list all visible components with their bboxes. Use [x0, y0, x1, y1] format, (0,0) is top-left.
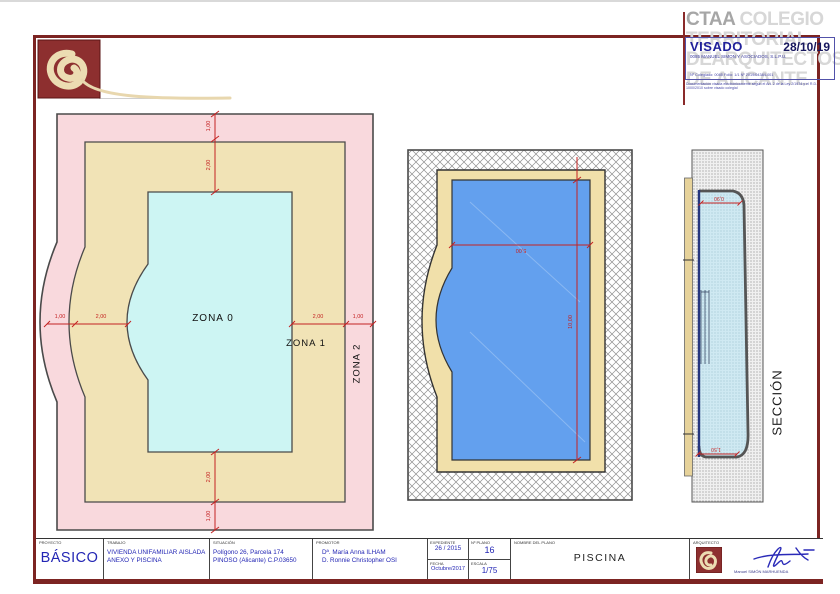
visado-box: VISADO 28/10/19 0085 MANUEL SIMON Y ASOC… — [685, 37, 835, 80]
section-depth-top-dim: 0,90 — [709, 195, 729, 201]
trabajo-header: TRABAJO — [107, 540, 206, 545]
situacion-header: SITUACIÓN — [213, 540, 309, 545]
titleblock-arquitecto-cell: ARQUITECTO Manuel SIMÓN MARHUENDA — [690, 539, 823, 580]
titleblock-expediente-fecha-cell: EXPEDIENTE 26 / 2015 FECHA Octubre/2017 — [428, 539, 469, 580]
dim-bottom-outer: 1,00 — [206, 506, 212, 526]
escala-value: 1/75 — [471, 566, 508, 575]
proyecto-value: BÁSICO — [39, 550, 100, 566]
dim-bottom-inner: 2,00 — [206, 467, 212, 487]
nombre-plano-header: NOMBRE DEL PLANO — [514, 540, 686, 545]
stamp-ref-line: Nº Colegiado: 0085 Folio: 1/1 Nº 2019/04… — [690, 73, 830, 77]
pool-length-dim: 10,00 — [568, 304, 574, 340]
fecha-value: Octubre/2017 — [430, 566, 466, 572]
stamp-org-acronym: CTAA — [686, 10, 735, 30]
proyecto-header: PROYECTO — [39, 540, 100, 545]
promotor-header: PROMOTOR — [316, 540, 424, 545]
promotor-line1: Dª. María Anna ILHAM — [322, 549, 424, 557]
nombre-plano-value: PISCINA — [514, 552, 686, 564]
stamp-legal-line: Documentación visada electrónicamente se… — [686, 82, 834, 90]
zone2-label: ZONA 2 — [352, 324, 363, 404]
num-plano-value: 16 — [471, 545, 508, 555]
titleblock-nombre-cell: NOMBRE DEL PLANO PISCINA — [511, 539, 690, 580]
visado-stamp: CTAA COLEGIO TERRITORIAL DEARQUITECTOS D… — [678, 10, 840, 106]
titleblock-proyecto-cell: PROYECTO BÁSICO — [36, 539, 104, 580]
zone0-label: ZONA 0 — [173, 313, 253, 324]
dim-left-inner: 2,00 — [91, 314, 111, 320]
promotor-line2: D. Ronnie Christopher OSI — [322, 557, 424, 565]
dim-top-outer: 1,00 — [206, 116, 212, 136]
dim-right-inner: 2,00 — [308, 314, 328, 320]
pool-plan — [408, 150, 632, 500]
stamp-firm-line: 0085 MANUEL SIMON Y ASOCIADOS, S.L.P.U. — [690, 54, 830, 59]
drawing-sheet: ZONA 0 ZONA 1 ZONA 2 1,00 2,00 2,00 1,00… — [0, 0, 840, 594]
sheet-frame-bottom — [33, 579, 823, 584]
dim-top-inner: 2,00 — [206, 155, 212, 175]
title-block: PROYECTO BÁSICO TRABAJO VIVIENDA UNIFAMI… — [36, 538, 823, 579]
signature — [734, 541, 820, 571]
section-depth-bottom-dim: 1,50 — [706, 446, 726, 452]
situacion-line2: PINOSO (Alicante) C.P.03650 — [213, 557, 309, 565]
expediente-value: 26 / 2015 — [430, 545, 466, 552]
trabajo-line1: VIVIENDA UNIFAMILIAR AISLADA — [107, 549, 206, 557]
titleblock-plano-escala-cell: Nº PLANO 16 ESCALA 1/75 — [469, 539, 511, 580]
titleblock-situacion-cell: SITUACIÓN Polígono 26, Parcela 174 PINOS… — [210, 539, 313, 580]
dim-right-outer: 1,00 — [348, 314, 368, 320]
dim-left-outer: 1,00 — [50, 314, 70, 320]
stamp-org-word1: COLEGIO — [739, 10, 823, 30]
zone1-label: ZONA 1 — [276, 338, 336, 349]
section-title: SECCIÓN — [770, 338, 785, 468]
arquitecto-name: Manuel SIMÓN MARHUENDA — [734, 569, 788, 574]
pool-width-dim: 5,00 — [509, 247, 533, 253]
trabajo-line2: ANEXO Y PISCINA — [107, 557, 206, 565]
visado-label: VISADO — [690, 39, 743, 54]
visado-date: 28/10/19 — [783, 40, 830, 54]
titleblock-trabajo-cell: TRABAJO VIVIENDA UNIFAMILIAR AISLADA ANE… — [104, 539, 210, 580]
arquitecto-logo — [696, 547, 722, 573]
situacion-line1: Polígono 26, Parcela 174 — [213, 549, 309, 557]
titleblock-promotor-cell: PROMOTOR Dª. María Anna ILHAM D. Ronnie … — [313, 539, 428, 580]
